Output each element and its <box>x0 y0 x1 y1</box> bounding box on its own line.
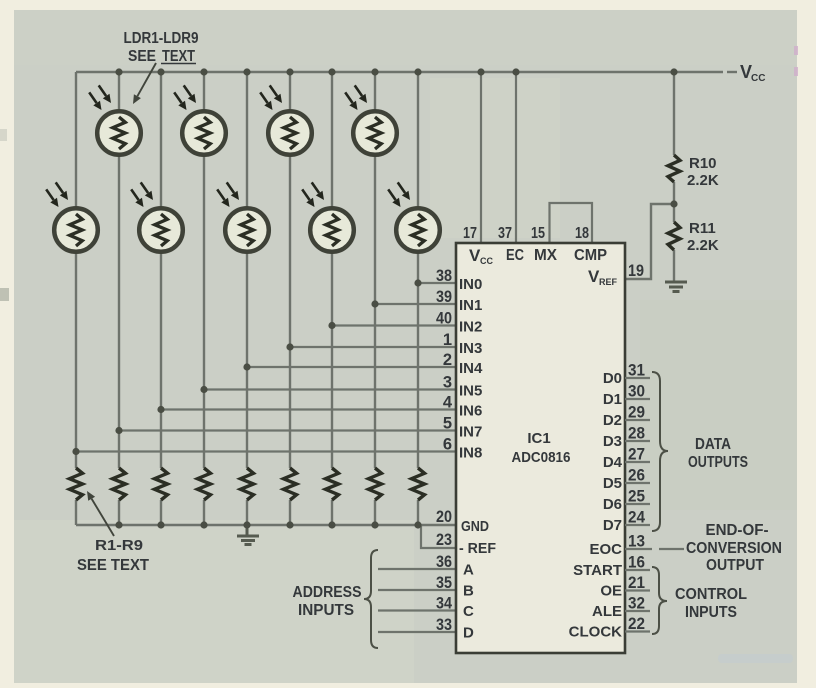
svg-text:4: 4 <box>443 394 453 412</box>
svg-text:40: 40 <box>436 310 452 328</box>
svg-text:OUTPUT: OUTPUT <box>706 557 764 574</box>
svg-text:5: 5 <box>443 415 452 433</box>
svg-text:IN5: IN5 <box>459 383 482 400</box>
svg-text:19: 19 <box>628 262 644 280</box>
svg-text:INPUTS: INPUTS <box>298 602 354 619</box>
svg-text:26: 26 <box>628 467 645 485</box>
svg-text:OE: OE <box>600 583 622 600</box>
svg-text:INPUTS: INPUTS <box>685 604 737 621</box>
svg-text:D6: D6 <box>603 496 622 513</box>
svg-text:D2: D2 <box>603 412 622 429</box>
svg-text:LDR1-LDR9: LDR1-LDR9 <box>124 30 199 47</box>
svg-text:39: 39 <box>436 288 452 306</box>
svg-text:D0: D0 <box>603 370 622 387</box>
svg-text:30: 30 <box>628 383 645 401</box>
svg-text:33: 33 <box>436 616 452 634</box>
svg-text:25: 25 <box>628 488 645 506</box>
svg-text:- REF: - REF <box>459 540 496 557</box>
svg-text:36: 36 <box>436 553 452 571</box>
svg-text:28: 28 <box>628 425 645 443</box>
svg-text:START: START <box>573 562 622 579</box>
svg-text:13: 13 <box>628 533 645 551</box>
svg-text:29: 29 <box>628 404 645 422</box>
svg-text:34: 34 <box>436 595 453 613</box>
svg-text:IN0: IN0 <box>459 276 482 293</box>
svg-text:TEXT: TEXT <box>162 48 195 65</box>
svg-text:15: 15 <box>531 225 545 242</box>
svg-text:SEE: SEE <box>128 48 156 65</box>
svg-text:R11: R11 <box>689 220 716 237</box>
svg-text:D1: D1 <box>603 391 622 408</box>
svg-text:IN2: IN2 <box>459 319 482 336</box>
svg-text:31: 31 <box>628 362 645 380</box>
svg-text:27: 27 <box>628 446 645 464</box>
svg-text:IC1: IC1 <box>527 430 550 447</box>
svg-text:ADC0816: ADC0816 <box>512 449 571 466</box>
svg-text:17: 17 <box>463 225 477 242</box>
svg-text:GND: GND <box>461 518 489 535</box>
svg-text:SEE TEXT: SEE TEXT <box>77 557 149 574</box>
svg-text:20: 20 <box>436 508 452 526</box>
svg-text:B: B <box>463 583 474 600</box>
svg-text:23: 23 <box>436 531 452 549</box>
svg-text:D4: D4 <box>603 454 623 471</box>
svg-text:3: 3 <box>443 374 452 392</box>
svg-text:REF: REF <box>599 277 618 287</box>
svg-text:D5: D5 <box>603 475 622 492</box>
svg-text:EC: EC <box>506 247 524 264</box>
svg-text:38: 38 <box>436 267 452 285</box>
svg-text:IN8: IN8 <box>459 445 482 462</box>
svg-text:CC: CC <box>480 256 493 266</box>
svg-text:2: 2 <box>443 351 452 369</box>
svg-text:22: 22 <box>628 615 645 633</box>
svg-text:ALE: ALE <box>592 603 622 620</box>
svg-text:END-OF-: END-OF- <box>706 522 769 539</box>
svg-text:CLOCK: CLOCK <box>569 624 622 641</box>
svg-text:35: 35 <box>436 574 452 592</box>
svg-text:MX: MX <box>534 247 557 264</box>
svg-text:EOC: EOC <box>589 541 622 558</box>
svg-text:2.2K: 2.2K <box>687 237 719 254</box>
svg-text:D7: D7 <box>603 517 622 534</box>
svg-text:IN7: IN7 <box>459 424 482 441</box>
svg-text:CC: CC <box>751 73 765 84</box>
svg-text:24: 24 <box>628 509 646 527</box>
svg-text:C: C <box>463 603 474 620</box>
svg-text:A: A <box>463 562 474 579</box>
svg-text:D: D <box>463 625 474 642</box>
svg-text:IN1: IN1 <box>459 297 482 314</box>
svg-text:16: 16 <box>628 554 645 572</box>
svg-text:37: 37 <box>498 225 512 242</box>
svg-text:2.2K: 2.2K <box>687 172 719 189</box>
svg-text:R1-R9: R1-R9 <box>95 537 143 554</box>
svg-text:OUTPUTS: OUTPUTS <box>688 454 748 471</box>
svg-text:IN6: IN6 <box>459 403 482 420</box>
svg-text:32: 32 <box>628 595 645 613</box>
svg-text:CONTROL: CONTROL <box>675 586 747 603</box>
svg-text:IN4: IN4 <box>459 360 483 377</box>
svg-text:CONVERSION: CONVERSION <box>686 540 782 557</box>
svg-text:18: 18 <box>575 225 589 242</box>
svg-text:R10: R10 <box>689 155 717 172</box>
svg-text:21: 21 <box>628 574 645 592</box>
svg-text:D3: D3 <box>603 433 622 450</box>
svg-text:DATA: DATA <box>695 436 731 453</box>
svg-text:ADDRESS: ADDRESS <box>293 584 362 601</box>
svg-text:IN3: IN3 <box>459 340 482 357</box>
svg-text:CMP: CMP <box>574 247 607 264</box>
svg-text:6: 6 <box>443 436 452 454</box>
svg-text:1: 1 <box>443 331 452 349</box>
